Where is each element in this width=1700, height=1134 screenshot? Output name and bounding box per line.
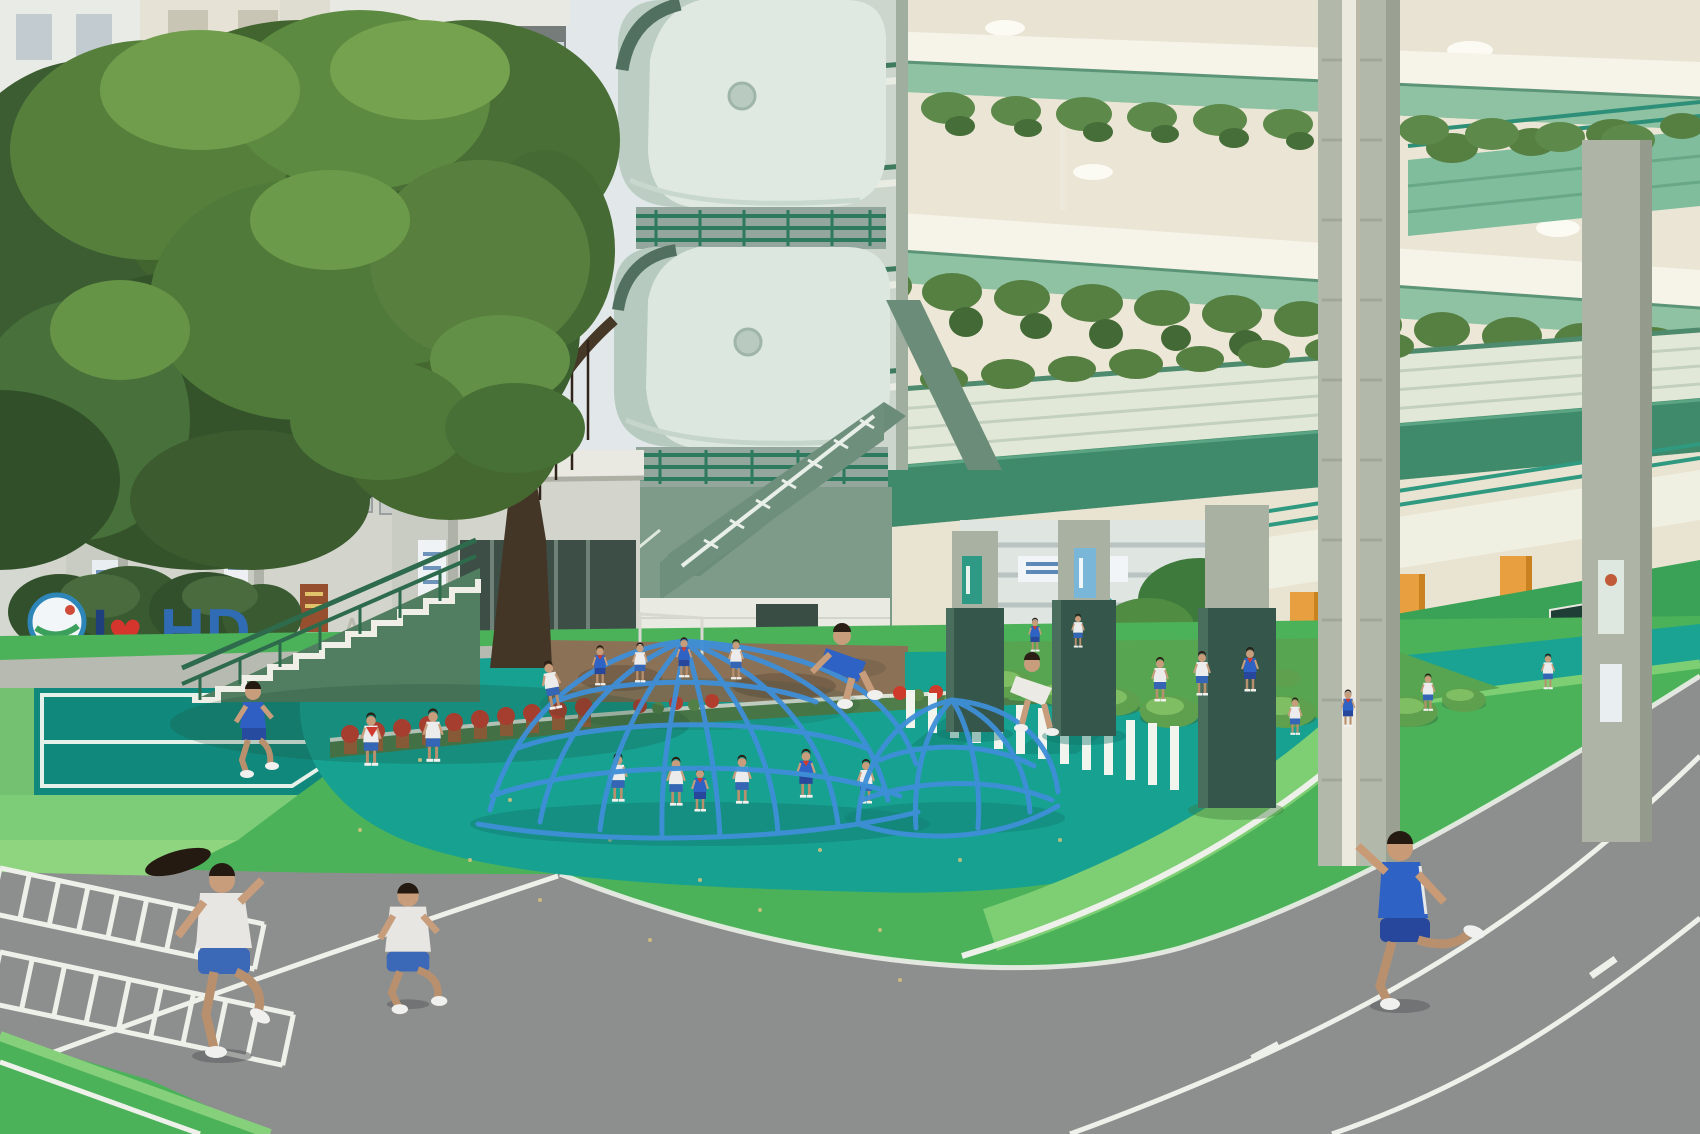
photo-school-courtyard: I ♥ HD — [0, 0, 1700, 1134]
column-poster — [1598, 560, 1624, 634]
column-number-sign — [962, 556, 982, 604]
tower-balcony-2 — [614, 247, 890, 447]
column-4-tall — [1318, 0, 1400, 866]
tower-balcony-1 — [618, 0, 886, 207]
tree-canopy — [0, 10, 620, 570]
column-sign — [1074, 548, 1096, 598]
column-5 — [1582, 140, 1652, 842]
tower-railing-1 — [636, 207, 886, 249]
drain-pipe — [1342, 0, 1358, 866]
